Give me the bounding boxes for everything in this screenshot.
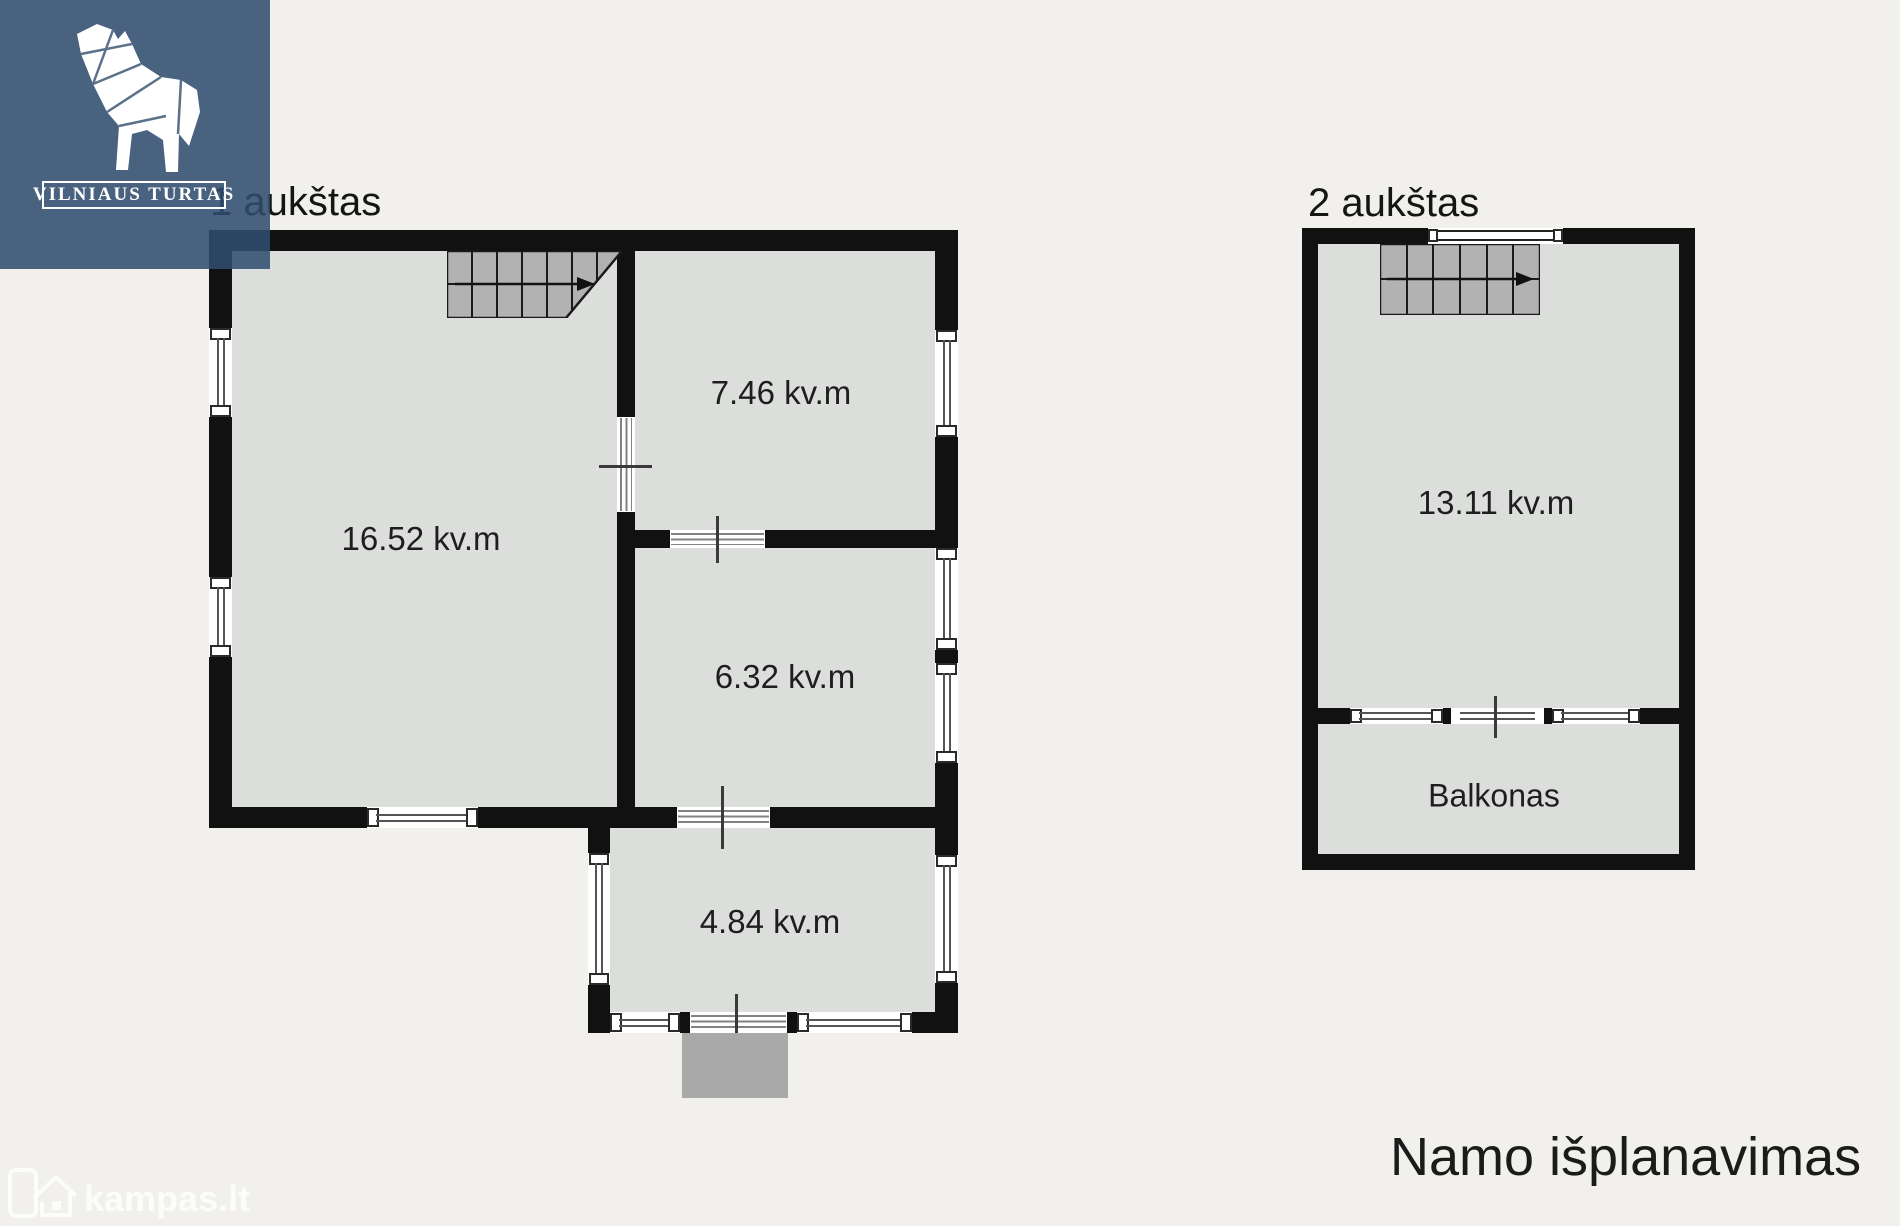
window bbox=[935, 548, 958, 650]
door-swing-tick bbox=[1494, 696, 1497, 738]
window bbox=[209, 577, 232, 657]
balcony-label: Balkonas bbox=[1428, 778, 1560, 815]
window bbox=[367, 807, 478, 828]
window bbox=[797, 1012, 912, 1033]
room-area-label: 4.84 kv.m bbox=[700, 903, 841, 941]
floor1-main-room-fill bbox=[232, 251, 935, 807]
window bbox=[588, 853, 610, 985]
wall-top bbox=[1563, 228, 1695, 244]
watermark-text: kampas.lt bbox=[84, 1178, 250, 1220]
agency-brand-name: VILNIAUS TURTAS bbox=[33, 184, 235, 206]
entry-step bbox=[682, 1033, 788, 1098]
window bbox=[935, 663, 958, 763]
wall-left bbox=[209, 230, 232, 828]
wall-bottom bbox=[1302, 854, 1695, 870]
wall-top bbox=[209, 230, 958, 251]
window bbox=[935, 855, 958, 983]
agency-brand-box: VILNIAUS TURTAS bbox=[42, 181, 226, 209]
plan-caption: Namo išplanavimas bbox=[1390, 1126, 1861, 1188]
agency-logo: VILNIAUS TURTAS bbox=[0, 0, 270, 269]
room-area-label: 13.11 kv.m bbox=[1418, 484, 1575, 522]
wolf-icon bbox=[35, 20, 225, 178]
window bbox=[1350, 708, 1443, 724]
stairs-icon bbox=[1380, 244, 1540, 315]
room-area-label: 6.32 kv.m bbox=[715, 658, 856, 696]
door-swing-tick bbox=[716, 516, 719, 563]
balcony-door-window bbox=[1451, 708, 1544, 724]
floorplan-canvas: 1 aukštas 16.52 kv.m 7.46 kv.m 6.32 kv.m… bbox=[0, 0, 1900, 1226]
window bbox=[935, 330, 958, 437]
door-swing-tick bbox=[721, 786, 724, 849]
door-swing-tick bbox=[599, 465, 652, 468]
wall-left bbox=[1302, 228, 1318, 870]
window bbox=[1552, 708, 1640, 724]
kampas-house-logo-icon bbox=[6, 1160, 76, 1222]
wall-bottom-main bbox=[209, 807, 936, 828]
wall-interior-vertical bbox=[617, 251, 635, 828]
wall-right bbox=[1679, 228, 1695, 870]
stairs-icon bbox=[447, 251, 622, 318]
railing-cap bbox=[1553, 229, 1563, 242]
entrance-door-opening bbox=[690, 1012, 787, 1033]
floor2-title: 2 aukštas bbox=[1308, 181, 1479, 226]
railing-cap bbox=[1428, 229, 1438, 242]
window bbox=[209, 328, 232, 417]
room-area-label: 16.52 kv.m bbox=[342, 520, 501, 558]
room-area-label: 7.46 kv.m bbox=[711, 374, 852, 412]
wall-top bbox=[1302, 228, 1428, 244]
window bbox=[610, 1012, 680, 1033]
stair-railing bbox=[1433, 230, 1558, 241]
